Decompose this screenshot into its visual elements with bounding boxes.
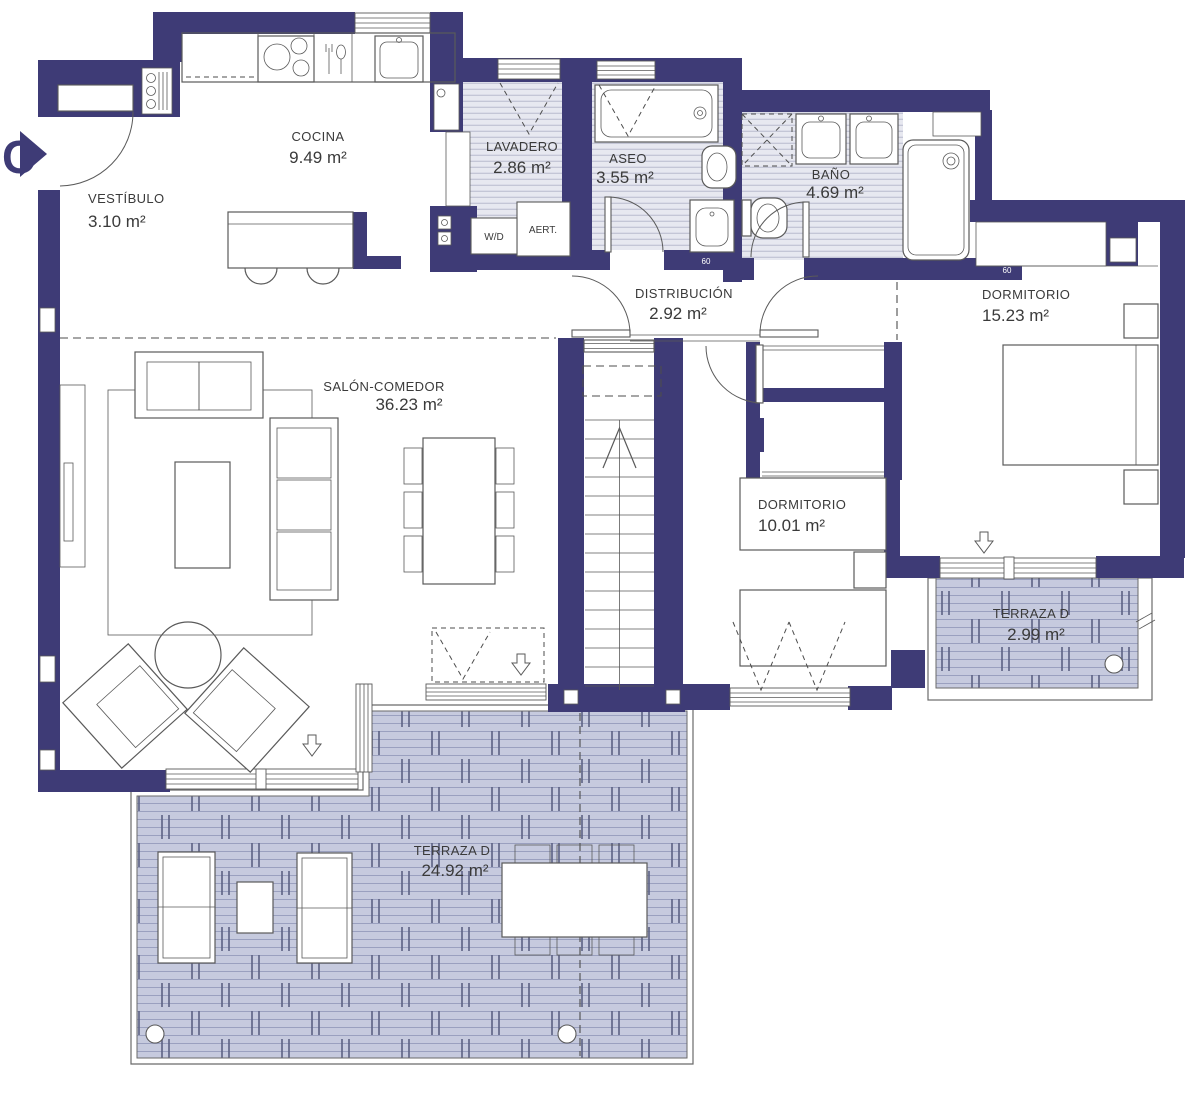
room-label-aseo: ASEO bbox=[609, 151, 647, 166]
aseo-window bbox=[597, 61, 655, 79]
room-area-terraza-pequena: 2.99 m² bbox=[1007, 625, 1065, 644]
room-label-terraza-grande: TERRAZA D bbox=[414, 843, 491, 858]
salon-corner-window bbox=[356, 684, 372, 772]
sun-lounger-icon bbox=[158, 852, 215, 963]
nightstand-icon bbox=[1124, 470, 1158, 504]
room-area-vestibulo: 3.10 m² bbox=[88, 212, 146, 231]
single-bed-icon bbox=[740, 478, 886, 550]
shaft-box bbox=[1110, 238, 1136, 262]
side-table-icon bbox=[237, 882, 273, 933]
double-bed-icon bbox=[1003, 345, 1158, 465]
coffee-table-icon bbox=[175, 462, 230, 568]
terrace-drain bbox=[558, 1025, 576, 1043]
room-label-cocina: COCINA bbox=[292, 129, 345, 144]
dormitorio-principal-window bbox=[940, 557, 1096, 579]
room-area-salon: 36.23 m² bbox=[375, 395, 442, 414]
shaft-box bbox=[933, 112, 981, 136]
room-label-dormitorio-principal: DORMITORIO bbox=[982, 287, 1070, 302]
room-label-lavadero: LAVADERO bbox=[486, 139, 558, 154]
nightstand-icon bbox=[1124, 304, 1158, 338]
pillar-notch bbox=[564, 690, 578, 704]
room-area-dormitorio-principal: 15.23 m² bbox=[982, 306, 1049, 325]
wall-notch bbox=[40, 308, 55, 332]
room-label-distribucion: DISTRIBUCIÓN bbox=[635, 286, 733, 301]
sun-lounger-icon bbox=[297, 853, 352, 963]
room-area-terraza-grande: 24.92 m² bbox=[421, 861, 488, 880]
pillar-notch bbox=[666, 690, 680, 704]
riser-box-icon bbox=[434, 84, 459, 130]
room-area-dormitorio-secundario: 10.01 m² bbox=[758, 516, 825, 535]
bathtub-icon bbox=[595, 85, 718, 142]
lavadero-window bbox=[498, 59, 560, 79]
column-strip bbox=[446, 132, 470, 206]
wall-notch bbox=[40, 656, 55, 682]
nightstand-icon bbox=[854, 552, 886, 588]
door-width-label: 60 bbox=[702, 257, 711, 266]
room-area-distribucion: 2.92 m² bbox=[649, 304, 707, 323]
room-label-bano: BAÑO bbox=[812, 167, 850, 182]
sofa-icon bbox=[135, 352, 263, 418]
room-area-aseo: 3.55 m² bbox=[596, 168, 654, 187]
room-area-lavadero: 2.86 m² bbox=[493, 158, 551, 177]
dormitorio-secundario-window bbox=[730, 688, 850, 706]
room-area-cocina: 9.49 m² bbox=[289, 148, 347, 167]
sofa-icon bbox=[270, 418, 338, 600]
single-bed-icon bbox=[740, 590, 886, 666]
washbasin-icon bbox=[690, 200, 734, 252]
salon-sliding-door bbox=[166, 769, 358, 789]
floor-plan-page: C VESTÍBULO 3.10 m² COCINA 9.49 m² LAVAD… bbox=[0, 0, 1200, 1103]
toilet-icon bbox=[742, 198, 787, 238]
terrace-drain bbox=[1105, 655, 1123, 673]
shower-tray-icon bbox=[903, 140, 969, 260]
room-area-bano: 4.69 m² bbox=[806, 183, 864, 202]
room-label-terraza-pequena: TERRAZA D bbox=[993, 606, 1070, 621]
wall-notch bbox=[40, 750, 55, 770]
kitchen-window bbox=[355, 13, 430, 33]
room-label-vestibulo: VESTÍBULO bbox=[88, 191, 165, 206]
floor-plan: C VESTÍBULO 3.10 m² COCINA 9.49 m² LAVAD… bbox=[0, 0, 1200, 1103]
meter-box-icon bbox=[142, 68, 172, 114]
room-label-dormitorio-secundario: DORMITORIO bbox=[758, 497, 846, 512]
bedroom-closet-recess bbox=[976, 222, 1106, 266]
washer-dryer-label: W/D bbox=[484, 232, 503, 243]
vent-label: AERT. bbox=[529, 225, 557, 236]
salon-terrace-sill bbox=[426, 684, 546, 700]
toilet-icon bbox=[702, 146, 736, 188]
room-label-salon: SALÓN-COMEDOR bbox=[323, 379, 445, 394]
door-width-label: 60 bbox=[1003, 266, 1012, 275]
terrace-drain bbox=[146, 1025, 164, 1043]
